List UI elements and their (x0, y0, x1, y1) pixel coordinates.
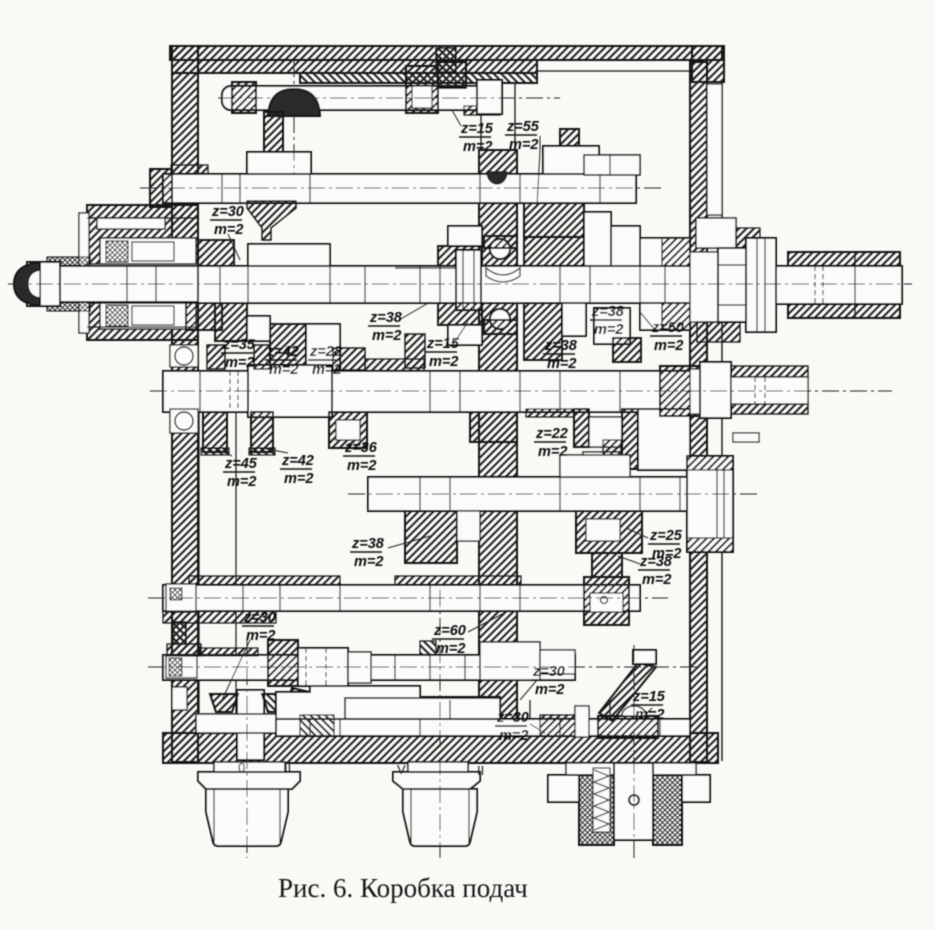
svg-text:z=30: z=30 (243, 610, 276, 626)
svg-text:m=2: m=2 (535, 682, 564, 698)
svg-text:m=2: m=2 (214, 222, 243, 238)
svg-text:z=28: z=28 (309, 344, 343, 360)
svg-text:m=2: m=2 (538, 444, 567, 460)
svg-text:z=38: z=38 (369, 310, 403, 326)
svg-text:m=2: m=2 (347, 458, 376, 474)
svg-text:z=22: z=22 (535, 426, 568, 442)
svg-text:m=2: m=2 (635, 707, 664, 723)
svg-text:V: V (397, 762, 406, 777)
svg-text:m=2: m=2 (429, 354, 458, 370)
svg-text:z=30: z=30 (211, 204, 244, 220)
svg-text:z=36: z=36 (344, 440, 378, 456)
svg-text:m=2: m=2 (509, 137, 538, 153)
svg-text:z=42: z=42 (281, 453, 314, 469)
svg-text:m=2: m=2 (284, 471, 313, 487)
svg-text:m=2: m=2 (654, 338, 683, 354)
svg-text:m=2: m=2 (227, 474, 256, 490)
svg-text:Рис. 6. Коробка подач: Рис. 6. Коробка подач (278, 873, 528, 903)
svg-text:z=25: z=25 (649, 528, 683, 544)
svg-text:m=2: m=2 (372, 328, 401, 344)
svg-text:z=55: z=55 (506, 119, 540, 135)
svg-text:m=2: m=2 (246, 628, 275, 644)
svg-text:z=60: z=60 (433, 623, 466, 639)
svg-text:z=38: z=38 (351, 536, 385, 552)
svg-text:z=15: z=15 (632, 689, 666, 705)
svg-text:z=30: z=30 (496, 710, 529, 726)
svg-text:m=2: m=2 (547, 356, 576, 372)
svg-text:m=2: m=2 (642, 572, 671, 588)
svg-text:II: II (477, 763, 484, 778)
svg-text:z=45: z=45 (224, 456, 258, 472)
svg-text:m=2: m=2 (436, 641, 465, 657)
svg-text:z=15: z=15 (460, 121, 494, 137)
svg-text:II: II (284, 759, 291, 774)
svg-text:z=42: z=42 (266, 344, 299, 360)
svg-text:z=38: z=38 (639, 554, 673, 570)
svg-text:0: 0 (238, 760, 245, 775)
svg-text:z=30: z=30 (532, 664, 565, 680)
svg-text:z=50: z=50 (651, 320, 684, 336)
svg-text:m=2: m=2 (594, 322, 623, 338)
svg-text:z=35: z=35 (222, 337, 256, 353)
svg-text:m=2: m=2 (463, 139, 492, 155)
svg-text:m=2: m=2 (225, 355, 254, 371)
svg-text:z=38: z=38 (591, 304, 625, 320)
svg-text:m=2: m=2 (269, 362, 298, 378)
svg-text:m=2: m=2 (312, 362, 341, 378)
svg-text:m=2: m=2 (499, 728, 528, 744)
svg-text:m=2: m=2 (354, 554, 383, 570)
svg-text:z=15: z=15 (426, 336, 460, 352)
svg-text:z=38: z=38 (544, 338, 578, 354)
